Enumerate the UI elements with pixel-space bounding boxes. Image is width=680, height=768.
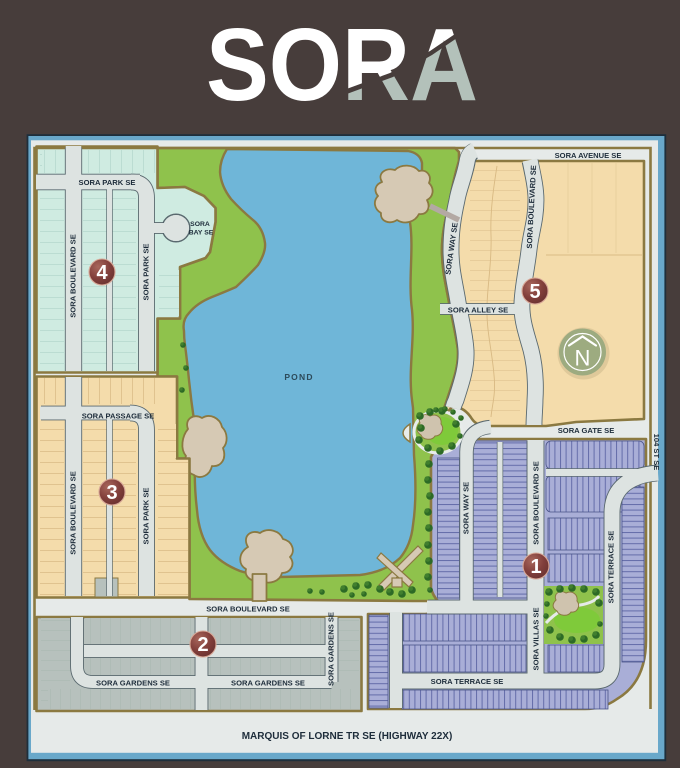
svg-text:SORA TERRACE SE: SORA TERRACE SE — [431, 677, 504, 686]
svg-text:SORA PARK SE: SORA PARK SE — [142, 488, 151, 545]
svg-text:4: 4 — [96, 262, 108, 284]
svg-text:SORA BOULEVARD SE: SORA BOULEVARD SE — [532, 461, 541, 545]
svg-text:5: 5 — [529, 281, 540, 303]
svg-text:1: 1 — [530, 556, 541, 578]
svg-text:SORA BOULEVARD SE: SORA BOULEVARD SE — [69, 471, 78, 555]
svg-text:SORA GARDENS SE: SORA GARDENS SE — [96, 679, 170, 688]
svg-text:SORA VILLAS SE: SORA VILLAS SE — [532, 607, 541, 670]
svg-text:SORA PARK SE: SORA PARK SE — [142, 244, 151, 301]
svg-text:SORA GARDENS SE: SORA GARDENS SE — [231, 679, 305, 688]
svg-text:SORA AVENUE SE: SORA AVENUE SE — [555, 151, 622, 160]
svg-text:SORA: SORA — [190, 221, 210, 228]
svg-text:SORA TERRACE SE: SORA TERRACE SE — [607, 531, 616, 604]
svg-text:SORA PARK SE: SORA PARK SE — [79, 178, 136, 187]
svg-text:2: 2 — [197, 634, 208, 656]
svg-text:POND: POND — [284, 372, 313, 382]
svg-text:BAY SE: BAY SE — [189, 230, 214, 237]
svg-text:SORA GATE SE: SORA GATE SE — [558, 426, 615, 435]
svg-text:SORA ALLEY SE: SORA ALLEY SE — [448, 306, 508, 315]
svg-text:SORA BOULEVARD SE: SORA BOULEVARD SE — [206, 605, 290, 614]
svg-text:SORA WAY SE: SORA WAY SE — [462, 482, 471, 534]
svg-text:SORA GARDENS SE: SORA GARDENS SE — [327, 612, 336, 686]
svg-text:SORA PASSAGE SE: SORA PASSAGE SE — [82, 412, 155, 421]
svg-text:3: 3 — [106, 482, 117, 504]
svg-text:104 ST SE: 104 ST SE — [652, 434, 661, 471]
svg-text:MARQUIS OF LORNE TR SE (HIGHWA: MARQUIS OF LORNE TR SE (HIGHWAY 22X) — [242, 731, 453, 742]
svg-text:N: N — [575, 345, 591, 370]
svg-text:SORA BOULEVARD SE: SORA BOULEVARD SE — [69, 234, 78, 318]
